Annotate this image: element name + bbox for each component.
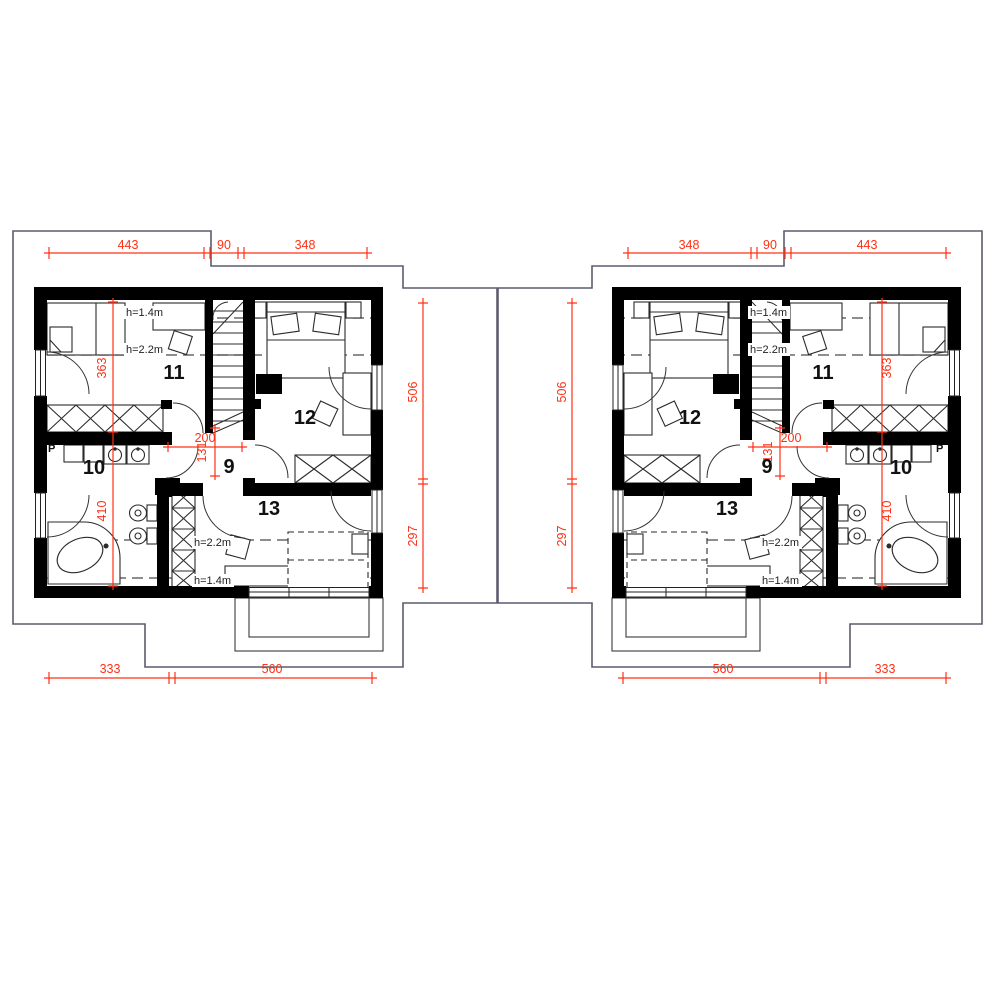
dim-label-bottom-2: 333 — [875, 662, 896, 676]
dim-label-top-1: 443 — [118, 238, 139, 252]
dim-label-top-1: 348 — [679, 238, 700, 252]
dim-label-bottom-1: 560 — [713, 662, 734, 676]
floor-plan-canvas: 443 90 348 506 297 363 410 200 131 333 5… — [0, 0, 1000, 1000]
dim-label-side-upper: 506 — [406, 382, 420, 403]
room-label-11: 11 — [163, 362, 184, 384]
dim-label-bottom-1: 333 — [100, 662, 121, 676]
room-label-10: 10 — [890, 457, 912, 479]
dim-label-top-2: 90 — [763, 238, 777, 252]
dim-label-top-3: 348 — [295, 238, 316, 252]
height-label-22-top: h=2.2m — [126, 344, 163, 356]
dim-label-410: 410 — [880, 501, 894, 522]
dim-label-200: 200 — [781, 431, 802, 445]
height-label-14-bottom: h=1.4m — [762, 575, 799, 587]
dim-label-top-3: 443 — [857, 238, 878, 252]
room-label-10: 10 — [83, 457, 105, 479]
floor-plan-page: 443 90 348 506 297 363 410 200 131 333 5… — [0, 0, 1000, 1000]
height-label-14-top: h=1.4m — [126, 307, 163, 319]
dim-label-363: 363 — [95, 358, 109, 379]
room-label-9: 9 — [223, 456, 234, 478]
dim-label-131: 131 — [195, 442, 209, 463]
room-label-13: 13 — [258, 498, 280, 520]
washer-label: P — [936, 443, 943, 455]
washer-label: P — [48, 443, 55, 455]
dim-label-side-upper: 506 — [555, 382, 569, 403]
room-label-12: 12 — [294, 407, 316, 429]
dim-label-bottom-2: 560 — [262, 662, 283, 676]
dim-label-side-lower: 297 — [406, 526, 420, 547]
room-label-13: 13 — [716, 498, 738, 520]
room-label-12: 12 — [679, 407, 701, 429]
height-label-22-bottom: h=2.2m — [762, 537, 799, 549]
dim-label-410: 410 — [95, 501, 109, 522]
room-label-11: 11 — [812, 362, 833, 384]
dim-label-side-lower: 297 — [555, 526, 569, 547]
height-label-22-top: h=2.2m — [750, 344, 787, 356]
height-label-14-bottom: h=1.4m — [194, 575, 231, 587]
height-label-14-top: h=1.4m — [750, 307, 787, 319]
dim-label-top-2: 90 — [217, 238, 231, 252]
dim-label-363: 363 — [880, 358, 894, 379]
height-label-22-bottom: h=2.2m — [194, 537, 231, 549]
room-label-9: 9 — [761, 456, 772, 478]
